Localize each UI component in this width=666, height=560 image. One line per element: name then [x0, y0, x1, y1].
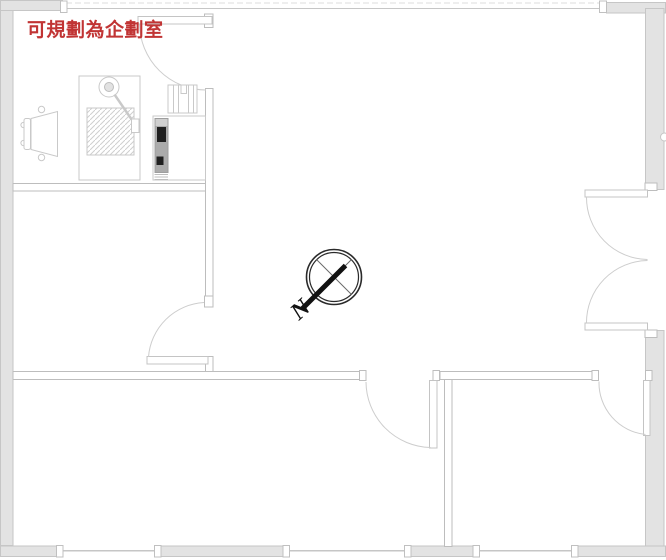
tower-drive-bay: [157, 127, 166, 142]
window-cap: [405, 546, 412, 558]
floor-plan-canvas: 可規劃為企劃室 N: [0, 0, 666, 560]
wall-top-left-block: [1, 1, 63, 11]
door-jamb: [433, 371, 440, 381]
double-door-leaf-bottom: [585, 323, 648, 330]
window-cap: [473, 546, 480, 558]
double-door-leaf-top: [585, 190, 648, 197]
door-leaf-bottom-right-room: [644, 381, 651, 436]
wall-left: [1, 1, 14, 546]
window-cap: [572, 546, 579, 558]
wall-break-notch: [661, 133, 666, 141]
door-swing-arc-bottom-left: [366, 382, 431, 448]
window-cap: [61, 1, 68, 13]
door-swing-arc-middle-room: [149, 303, 205, 358]
wall-right-upper: [646, 9, 665, 190]
partition-horizontal-1: [13, 184, 206, 192]
wall-bottom-seg-3: [411, 546, 475, 557]
door-jamb: [360, 371, 367, 381]
partition-vertical-2: [445, 380, 453, 547]
desk-lamp-hub: [105, 83, 114, 92]
door-jamb: [592, 371, 599, 381]
window-cap: [155, 546, 162, 558]
desk: [79, 76, 140, 180]
window-cap: [283, 546, 290, 558]
door-swing-arc-bottom-right: [599, 382, 646, 435]
partition-horizontal-2-left: [13, 372, 366, 380]
shelf-notch: [181, 85, 187, 94]
wall-bottom-seg-2: [161, 546, 284, 557]
chair-seat: [31, 112, 58, 157]
desk-lamp-head: [132, 119, 140, 133]
office-chair: [21, 106, 58, 160]
computer-station: [153, 116, 206, 180]
tower-power-button: [157, 157, 164, 166]
double-door-arc-bottom: [586, 261, 647, 324]
double-door-arc-top: [586, 197, 647, 260]
wall-bottom-seg-4: [578, 546, 666, 557]
door-jamb: [205, 296, 214, 307]
partition-vertical-1: [206, 89, 214, 303]
door-jamb: [645, 183, 657, 191]
wall-bottom-seg-1: [1, 546, 58, 557]
chair-knob: [38, 154, 44, 160]
door-leaf-middle-room: [147, 357, 208, 365]
doors: [138, 17, 650, 449]
window-cap: [57, 546, 64, 558]
desk-hatched-surface: [87, 108, 134, 155]
chair-backrest: [24, 119, 31, 150]
door-leaf-bottom-left-room: [430, 381, 438, 449]
door-jamb: [645, 330, 657, 338]
partition-horizontal-2-mid: [440, 372, 593, 380]
office-furniture: [21, 76, 206, 180]
book-shelf: [168, 85, 197, 113]
door-jamb: [646, 371, 653, 381]
room-annotation: 可規劃為企劃室: [27, 21, 164, 41]
wall-right-lower: [646, 331, 665, 557]
window-cap: [600, 1, 607, 13]
chair-knob: [38, 106, 44, 112]
tower-top-panel: [156, 119, 168, 126]
floor-plan-drawing: [0, 0, 666, 560]
